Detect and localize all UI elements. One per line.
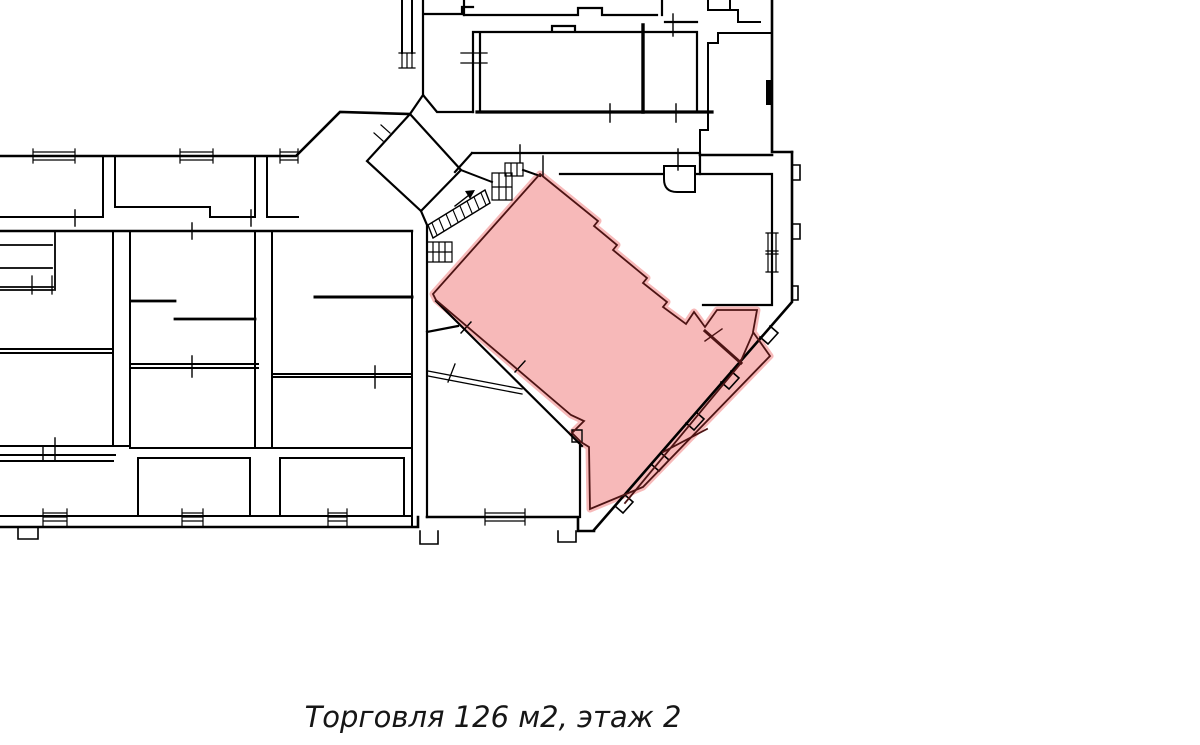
window-marks — [485, 509, 525, 525]
wall — [643, 22, 697, 112]
window-marks — [399, 53, 415, 68]
wall — [421, 211, 427, 517]
facade-teeth — [18, 527, 576, 544]
wall-rounded-room — [664, 166, 695, 192]
door-ticks — [32, 276, 52, 294]
door-ticks — [43, 438, 55, 461]
caption: Торговля 126 м2, этаж 2 — [305, 700, 682, 734]
wall — [402, 0, 412, 53]
floor-plan-page: Торговля 126 м2, этаж 2 — [0, 0, 1200, 745]
wall — [410, 0, 473, 114]
wall — [700, 0, 770, 155]
stairs-rails — [428, 190, 490, 238]
wall — [464, 0, 662, 15]
wall-diamond-hall — [367, 114, 461, 211]
door-ticks — [192, 356, 375, 388]
wall — [461, 170, 540, 182]
wall — [0, 349, 130, 461]
filled-marks — [465, 80, 773, 199]
wall — [138, 458, 404, 516]
wall-closet — [0, 231, 55, 290]
wall-outline — [0, 517, 594, 531]
wall — [473, 26, 643, 112]
stairs-risers — [432, 193, 486, 235]
wall — [113, 231, 412, 527]
ramp-lines — [428, 364, 522, 394]
door-ticks — [75, 210, 251, 239]
wall — [0, 156, 298, 217]
floor-plan — [0, 0, 1200, 745]
window-block — [505, 163, 523, 176]
window-block — [492, 173, 512, 200]
wall-half — [132, 301, 255, 319]
wall-outline — [0, 112, 410, 156]
window-solid-mark — [766, 80, 773, 105]
building-walls — [0, 0, 800, 544]
window-marks — [43, 509, 347, 526]
stairs-lower-flight — [427, 242, 452, 262]
wall — [700, 0, 792, 155]
window-marks — [766, 233, 778, 272]
